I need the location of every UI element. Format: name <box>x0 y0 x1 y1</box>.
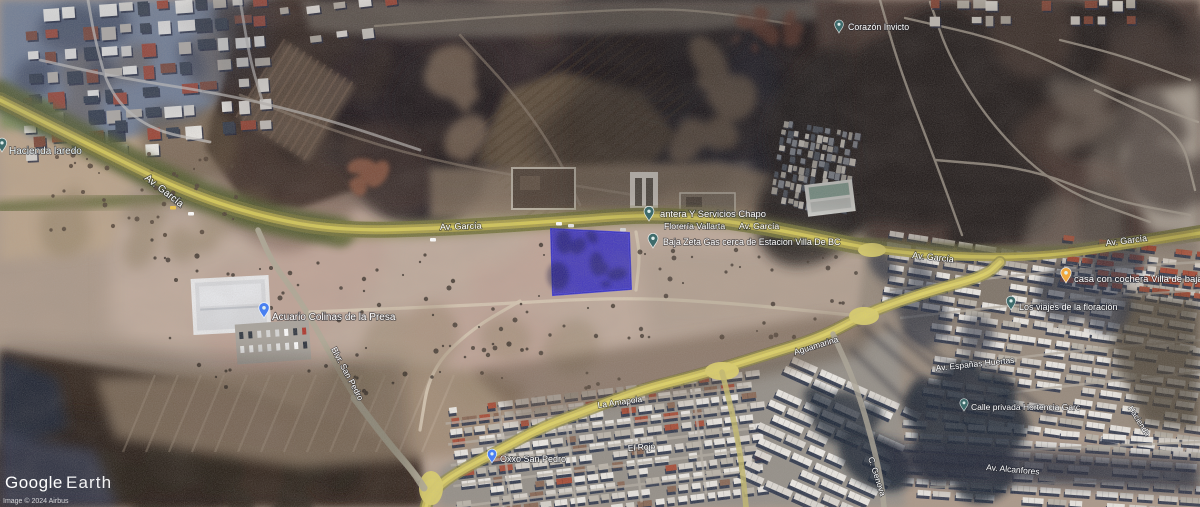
svg-text:Earth: Earth <box>66 473 112 492</box>
svg-text:Corazón Invicto: Corazón Invicto <box>848 22 909 32</box>
svg-text:Acuario Colinas de la Presa: Acuario Colinas de la Presa <box>272 312 396 323</box>
svg-text:Oxxo San Pedro: Oxxo San Pedro <box>500 454 566 464</box>
svg-text:Av. García: Av. García <box>739 221 779 231</box>
svg-text:Los viajes de la floración: Los viajes de la floración <box>1019 302 1118 312</box>
svg-text:Hacienda laredo: Hacienda laredo <box>9 146 82 157</box>
svg-text:antera Y Servicios Chapo: antera Y Servicios Chapo <box>660 208 766 219</box>
svg-text:El Rojo: El Rojo <box>627 441 655 453</box>
svg-text:casa con cochera Villa de baja: casa con cochera Villa de baja ca <box>1074 274 1200 285</box>
svg-text:Av. García: Av. García <box>440 221 482 232</box>
svg-text:Baja Zeta Gas cerca de Estacio: Baja Zeta Gas cerca de Estacion Villa De… <box>663 237 841 247</box>
svg-text:Google: Google <box>5 473 63 492</box>
svg-text:Calle privada Hortencia Garc: Calle privada Hortencia Garc <box>971 402 1081 412</box>
svg-text:Image © 2024 Airbus: Image © 2024 Airbus <box>3 497 69 505</box>
svg-text:Florería Vallarta: Florería Vallarta <box>664 221 725 231</box>
